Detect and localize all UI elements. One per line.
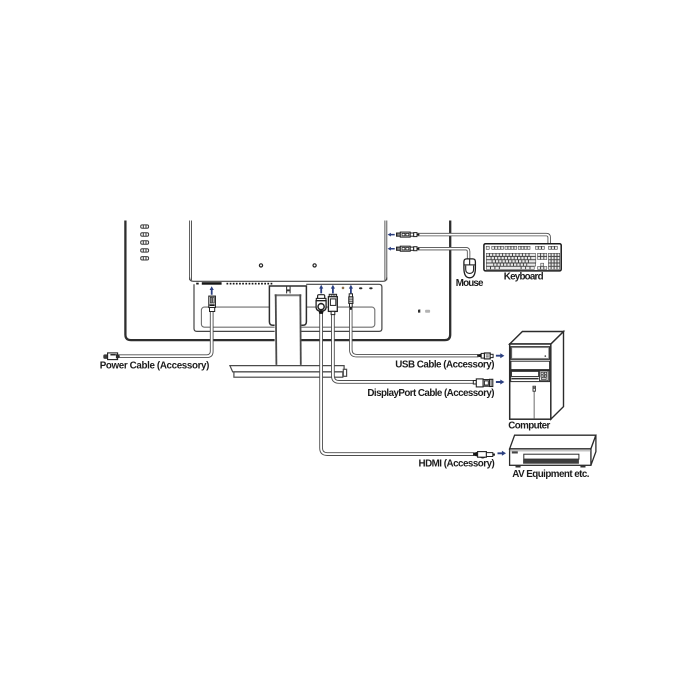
svg-text:Power Cable (Accessory): Power Cable (Accessory) <box>100 361 210 372</box>
svg-text:USB Cable (Accessory): USB Cable (Accessory) <box>395 359 494 370</box>
svg-text:Keyboard: Keyboard <box>504 272 544 283</box>
svg-text:Mouse: Mouse <box>456 278 484 289</box>
svg-text:DisplayPort Cable (Accessory): DisplayPort Cable (Accessory) <box>367 388 494 399</box>
svg-text:HDMI (Accessory): HDMI (Accessory) <box>419 458 495 469</box>
svg-text:Computer: Computer <box>508 420 550 431</box>
svg-text:AV Equipment etc.: AV Equipment etc. <box>512 469 589 480</box>
